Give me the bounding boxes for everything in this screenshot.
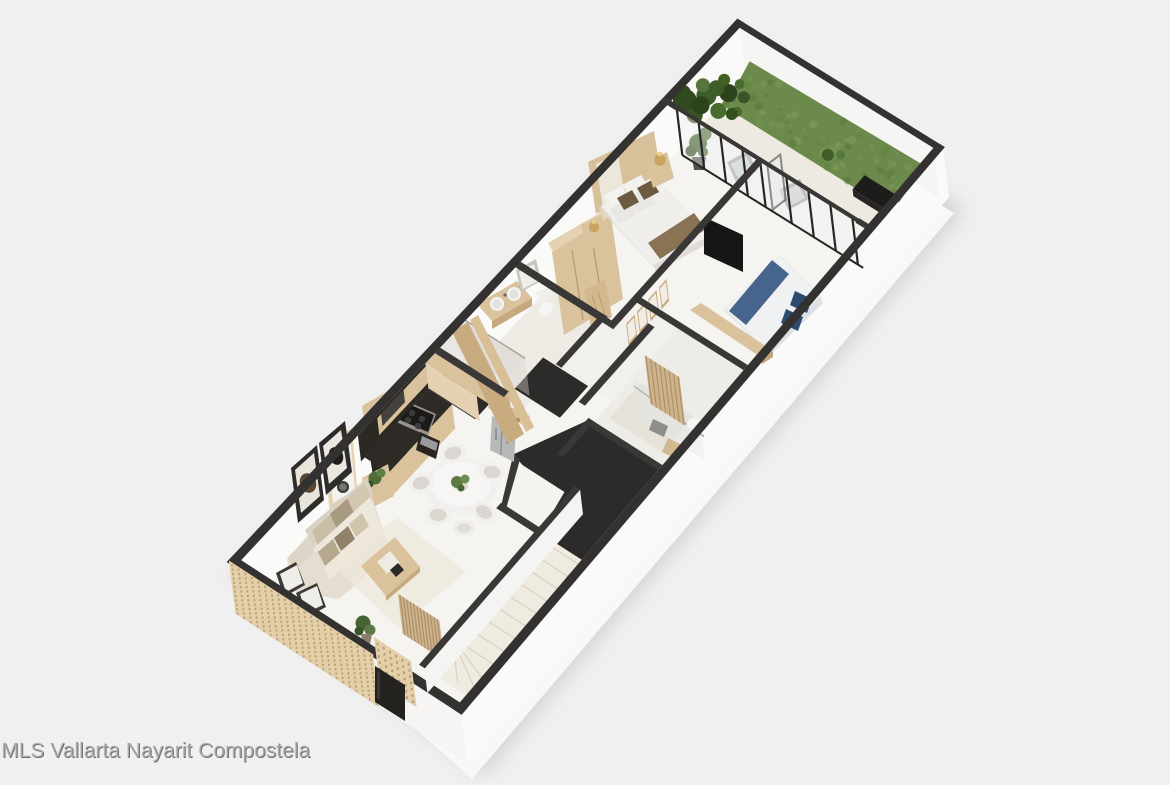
svg-text:MLS Vallarta Nayarit Compostel: MLS Vallarta Nayarit Compostela bbox=[2, 740, 311, 763]
